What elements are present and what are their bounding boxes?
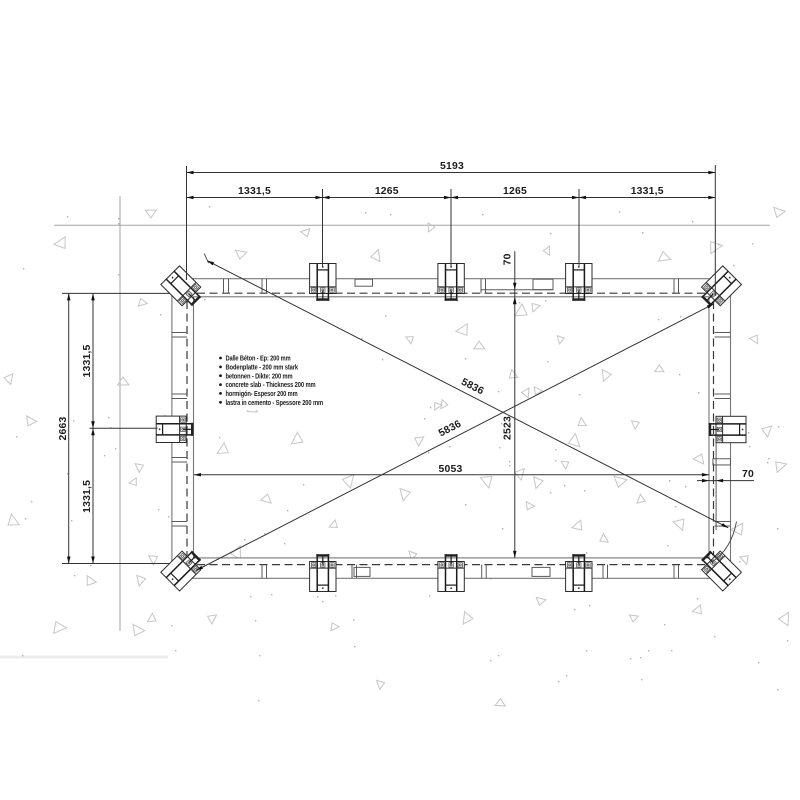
- svg-text:Bodenplatte - 200 mm stark: Bodenplatte - 200 mm stark: [226, 363, 299, 372]
- svg-text:1265: 1265: [503, 186, 527, 197]
- svg-text:Dalle Béton - Ep: 200 mm: Dalle Béton - Ep: 200 mm: [226, 354, 291, 363]
- svg-text:5053: 5053: [439, 464, 463, 475]
- svg-text:2663: 2663: [58, 417, 69, 441]
- svg-text:hormigón- Espesor 200 mm: hormigón- Espesor 200 mm: [226, 389, 298, 398]
- svg-text:5193: 5193: [440, 161, 464, 172]
- svg-text:1265: 1265: [375, 186, 399, 197]
- svg-text:1331,5: 1331,5: [82, 344, 93, 377]
- svg-text:betonnen - Dikte: 200 mm: betonnen - Dikte: 200 mm: [226, 371, 293, 380]
- svg-text:1331,5: 1331,5: [82, 480, 93, 513]
- svg-text:70: 70: [502, 253, 513, 265]
- svg-text:2523: 2523: [502, 416, 513, 440]
- svg-text:1331,5: 1331,5: [238, 186, 271, 197]
- svg-text:lastra in cemento - Spessore 2: lastra in cemento - Spessore 200 mm: [226, 398, 324, 407]
- svg-text:70: 70: [742, 469, 754, 480]
- svg-text:concrete slab - Thickness 200: concrete slab - Thickness 200 mm: [226, 380, 316, 389]
- svg-text:1331,5: 1331,5: [631, 186, 664, 197]
